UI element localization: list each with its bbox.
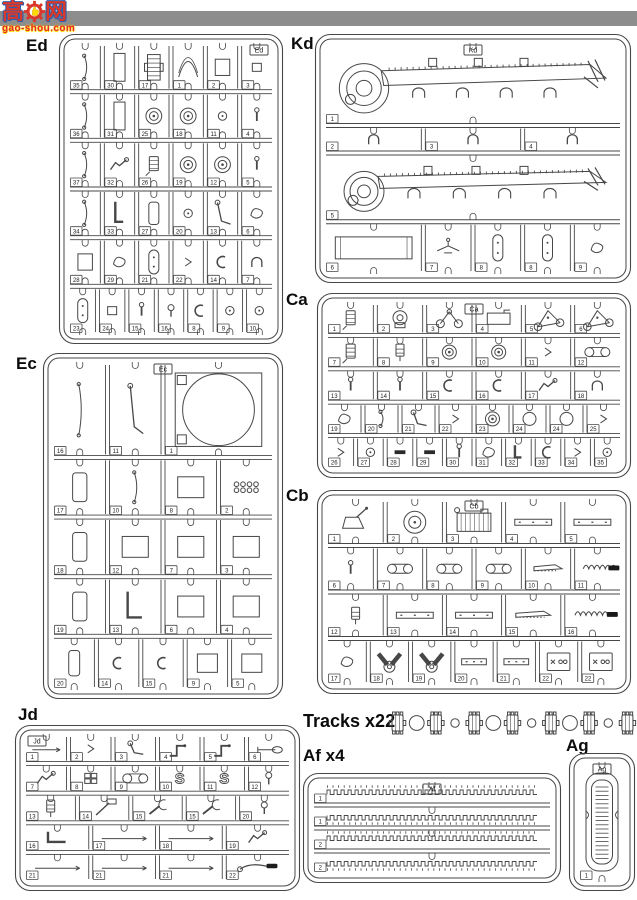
sprue-label-ec: Ec — [16, 354, 37, 374]
svg-text:17: 17 — [528, 394, 535, 400]
sprue-panel-cb: 1234567891011121314151617181920212222Cb — [316, 489, 632, 695]
svg-text:16: 16 — [161, 327, 168, 333]
svg-text:6: 6 — [579, 327, 583, 333]
sprue-label-af: Af x4 — [303, 746, 345, 766]
svg-text:31: 31 — [107, 132, 114, 138]
svg-text:5: 5 — [331, 213, 335, 219]
svg-text:24: 24 — [553, 427, 560, 433]
watermark-logo: 高 网 gao-shou.com — [2, 0, 106, 34]
logo-row: 高 网 — [2, 0, 106, 23]
svg-text:12: 12 — [251, 785, 258, 791]
svg-text:28: 28 — [390, 461, 397, 467]
svg-text:9: 9 — [431, 360, 435, 366]
svg-text:4: 4 — [529, 145, 533, 151]
svg-text:16: 16 — [568, 630, 575, 636]
svg-text:18: 18 — [162, 844, 169, 850]
svg-text:32: 32 — [107, 181, 114, 187]
svg-text:19: 19 — [57, 628, 64, 634]
svg-text:15: 15 — [146, 682, 153, 688]
svg-text:8: 8 — [480, 266, 484, 272]
svg-text:2: 2 — [225, 509, 229, 515]
svg-text:30: 30 — [107, 83, 114, 89]
svg-text:4: 4 — [225, 628, 229, 634]
svg-text:S: S — [175, 770, 185, 787]
svg-text:S: S — [219, 770, 229, 787]
svg-text:15: 15 — [430, 394, 437, 400]
svg-text:9: 9 — [481, 584, 485, 590]
svg-text:35: 35 — [73, 83, 80, 89]
svg-text:10: 10 — [528, 584, 535, 590]
svg-text:2: 2 — [392, 537, 396, 543]
logo-char-gao: 高 — [2, 1, 24, 23]
svg-text:4: 4 — [164, 755, 168, 761]
svg-text:34: 34 — [568, 461, 575, 467]
svg-text:15: 15 — [509, 630, 516, 636]
svg-text:24: 24 — [102, 327, 109, 333]
svg-text:1: 1 — [170, 449, 174, 455]
svg-text:1: 1 — [331, 117, 335, 123]
svg-text:Ca: Ca — [470, 307, 479, 314]
svg-text:15: 15 — [136, 814, 143, 820]
svg-text:7: 7 — [31, 785, 35, 791]
track-links-drawing — [388, 704, 637, 742]
svg-text:21: 21 — [29, 874, 36, 880]
sprue-label-jd: Jd — [18, 705, 38, 725]
svg-text:1: 1 — [333, 327, 337, 333]
svg-text:21: 21 — [405, 427, 412, 433]
svg-text:27: 27 — [142, 229, 149, 235]
svg-text:17: 17 — [142, 83, 149, 89]
svg-text:11: 11 — [210, 132, 217, 138]
svg-text:2: 2 — [382, 327, 386, 333]
svg-text:6: 6 — [246, 229, 250, 235]
svg-text:Ec: Ec — [159, 367, 168, 374]
svg-text:9: 9 — [579, 266, 583, 272]
svg-text:13: 13 — [390, 630, 397, 636]
svg-text:9: 9 — [222, 327, 226, 333]
svg-text:Af: Af — [429, 787, 436, 794]
svg-text:6: 6 — [333, 584, 337, 590]
svg-text:9: 9 — [120, 785, 124, 791]
svg-text:3: 3 — [246, 83, 250, 89]
svg-text:18: 18 — [176, 132, 183, 138]
svg-text:5: 5 — [209, 755, 213, 761]
sprue-panel-ca: 1234567891011121314151617181920212223242… — [316, 292, 632, 479]
svg-text:3: 3 — [120, 755, 124, 761]
svg-text:22: 22 — [442, 427, 449, 433]
svg-text:33: 33 — [107, 229, 114, 235]
svg-text:22: 22 — [585, 677, 592, 683]
svg-text:2: 2 — [331, 145, 335, 151]
svg-text:1: 1 — [31, 755, 35, 761]
sprue-drawing-ag: 1Ag — [568, 752, 636, 892]
svg-text:5: 5 — [246, 181, 250, 187]
svg-text:18: 18 — [57, 568, 64, 574]
svg-text:13: 13 — [210, 229, 217, 235]
svg-text:34: 34 — [73, 229, 80, 235]
svg-text:32: 32 — [509, 461, 516, 467]
svg-text:1: 1 — [319, 797, 323, 803]
svg-text:8: 8 — [431, 584, 435, 590]
svg-text:13: 13 — [29, 814, 36, 820]
svg-text:12: 12 — [210, 181, 217, 187]
svg-text:19: 19 — [331, 427, 338, 433]
svg-text:11: 11 — [528, 360, 535, 366]
svg-text:16: 16 — [479, 394, 486, 400]
svg-text:23: 23 — [479, 427, 486, 433]
svg-text:37: 37 — [73, 181, 80, 187]
svg-text:7: 7 — [430, 266, 434, 272]
sprue-panel-ag: 1Ag — [568, 752, 636, 892]
track-links-row — [388, 704, 637, 742]
svg-text:21: 21 — [142, 278, 149, 284]
svg-text:28: 28 — [73, 278, 80, 284]
svg-text:18: 18 — [373, 677, 380, 683]
sprue-drawing-kd: 1234567889Kd — [314, 33, 632, 284]
svg-text:14: 14 — [380, 394, 387, 400]
svg-text:1: 1 — [333, 537, 337, 543]
tracks-count-label: Tracks x22 — [303, 711, 395, 732]
svg-text:20: 20 — [176, 229, 183, 235]
svg-text:29: 29 — [420, 461, 427, 467]
svg-text:3: 3 — [431, 327, 435, 333]
svg-text:Kd: Kd — [469, 48, 478, 55]
sprue-panel-af: 1122Af — [302, 772, 562, 884]
sprue-label-ca: Ca — [286, 290, 308, 310]
svg-text:13: 13 — [331, 394, 338, 400]
svg-text:8: 8 — [170, 509, 174, 515]
sprue-drawing-jd: 123456789S10S111213141515201617181921212… — [14, 724, 301, 892]
sprue-drawing-cb: 1234567891011121314151617181920212222Cb — [316, 489, 632, 695]
sprue-panel-ec: 1611117108218127319136420141595Ec — [42, 352, 284, 700]
svg-text:2: 2 — [319, 843, 323, 849]
svg-text:5: 5 — [236, 682, 240, 688]
svg-text:8: 8 — [192, 327, 196, 333]
svg-text:20: 20 — [243, 814, 250, 820]
svg-text:5: 5 — [530, 327, 534, 333]
svg-text:1: 1 — [178, 83, 182, 89]
svg-text:6: 6 — [253, 755, 257, 761]
svg-text:21: 21 — [96, 874, 103, 880]
sprue-drawing-ca: 1234567891011121314151617181920212223242… — [316, 292, 632, 479]
sprue-panel-kd: 1234567889Kd — [314, 33, 632, 284]
svg-text:8: 8 — [382, 360, 386, 366]
svg-text:4: 4 — [510, 537, 514, 543]
logo-char-wang: 网 — [45, 1, 67, 23]
svg-text:19: 19 — [229, 844, 236, 850]
svg-text:9: 9 — [192, 682, 196, 688]
sprue-panel-jd: 123456789S10S111213141515201617181921212… — [14, 724, 301, 892]
svg-text:16: 16 — [57, 449, 64, 455]
svg-text:19: 19 — [176, 181, 183, 187]
svg-text:15: 15 — [132, 327, 139, 333]
sprue-drawing-ec: 1611117108218127319136420141595Ec — [42, 352, 284, 700]
svg-text:8: 8 — [529, 266, 533, 272]
svg-text:29: 29 — [107, 278, 114, 284]
svg-text:22: 22 — [229, 874, 236, 880]
svg-text:10: 10 — [479, 360, 486, 366]
svg-text:16: 16 — [29, 844, 36, 850]
sprue-drawing-af: 1122Af — [302, 772, 562, 884]
svg-text:20: 20 — [57, 682, 64, 688]
svg-text:21: 21 — [162, 874, 169, 880]
svg-text:18: 18 — [578, 394, 585, 400]
svg-text:19: 19 — [415, 677, 422, 683]
svg-text:27: 27 — [361, 461, 368, 467]
svg-text:10: 10 — [162, 785, 169, 791]
svg-text:4: 4 — [481, 327, 485, 333]
svg-text:25: 25 — [142, 132, 149, 138]
svg-text:7: 7 — [333, 360, 337, 366]
svg-text:7: 7 — [382, 584, 386, 590]
svg-text:14: 14 — [101, 682, 108, 688]
svg-text:14: 14 — [449, 630, 456, 636]
svg-text:10: 10 — [249, 327, 256, 333]
svg-text:17: 17 — [57, 509, 64, 515]
svg-text:11: 11 — [113, 449, 120, 455]
svg-text:3: 3 — [430, 145, 434, 151]
svg-text:3: 3 — [225, 568, 229, 574]
svg-text:36: 36 — [73, 132, 80, 138]
svg-text:1: 1 — [585, 874, 589, 880]
svg-text:12: 12 — [331, 630, 338, 636]
svg-text:26: 26 — [331, 461, 338, 467]
svg-text:22: 22 — [542, 677, 549, 683]
logo-domain: gao-shou.com — [2, 23, 106, 34]
svg-text:Jd: Jd — [33, 739, 41, 746]
svg-text:17: 17 — [331, 677, 338, 683]
svg-text:17: 17 — [96, 844, 103, 850]
svg-text:20: 20 — [368, 427, 375, 433]
svg-text:12: 12 — [578, 360, 585, 366]
sprue-panel-ed: 3530171233631251811437322619125343327201… — [58, 33, 284, 345]
svg-text:5: 5 — [569, 537, 573, 543]
sprue-drawing-ed: 3530171233631251811437322619125343327201… — [58, 33, 284, 345]
svg-text:6: 6 — [170, 628, 174, 634]
svg-text:7: 7 — [246, 278, 250, 284]
svg-text:26: 26 — [142, 181, 149, 187]
sprue-label-cb: Cb — [286, 486, 309, 506]
svg-text:22: 22 — [176, 278, 183, 284]
svg-text:20: 20 — [458, 677, 465, 683]
svg-text:24: 24 — [516, 427, 523, 433]
svg-text:2: 2 — [212, 83, 216, 89]
svg-text:11: 11 — [207, 785, 214, 791]
sprue-label-kd: Kd — [291, 34, 314, 54]
svg-text:23: 23 — [73, 327, 80, 333]
svg-text:4: 4 — [246, 132, 250, 138]
svg-text:14: 14 — [82, 814, 89, 820]
svg-text:25: 25 — [590, 427, 597, 433]
svg-text:Ag: Ag — [598, 767, 607, 774]
svg-text:Cb: Cb — [470, 504, 479, 511]
svg-text:30: 30 — [449, 461, 456, 467]
svg-text:6: 6 — [331, 266, 335, 272]
svg-text:Ed: Ed — [255, 48, 264, 55]
svg-text:13: 13 — [112, 628, 119, 634]
svg-text:12: 12 — [112, 568, 119, 574]
gear-thumb-icon — [23, 0, 46, 23]
svg-text:3: 3 — [451, 537, 455, 543]
svg-text:35: 35 — [597, 461, 604, 467]
svg-text:33: 33 — [538, 461, 545, 467]
svg-text:31: 31 — [479, 461, 486, 467]
svg-text:14: 14 — [210, 278, 217, 284]
sprue-label-ed: Ed — [26, 36, 48, 56]
svg-text:8: 8 — [75, 785, 79, 791]
svg-text:7: 7 — [170, 568, 174, 574]
svg-text:1: 1 — [319, 820, 323, 826]
svg-text:21: 21 — [500, 677, 507, 683]
svg-text:11: 11 — [578, 584, 585, 590]
svg-text:15: 15 — [189, 814, 196, 820]
svg-text:2: 2 — [75, 755, 79, 761]
svg-text:10: 10 — [112, 509, 119, 515]
page: 高 网 gao-shou.com Ed Kd Ec Ca Cb Jd Track… — [0, 0, 637, 900]
svg-text:2: 2 — [319, 866, 323, 872]
